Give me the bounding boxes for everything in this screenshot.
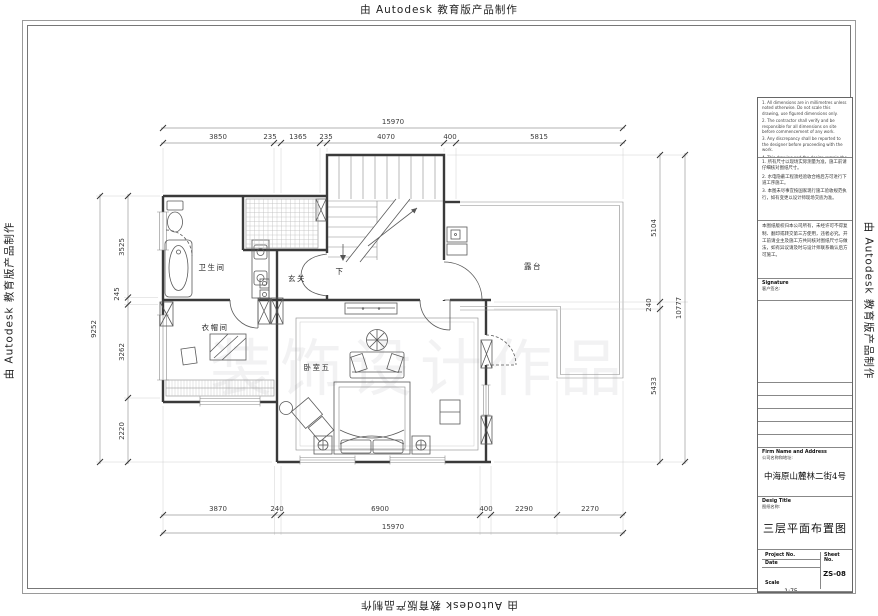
stairs: 下 (328, 156, 443, 276)
note-en-1: 1. All dimensions are in millimetres unl… (762, 100, 848, 116)
project-address: 中海原山麓林二街4号 (762, 470, 848, 482)
terrace-label: 露台 (524, 261, 542, 271)
note-cn-1: 1. 所有尺寸以现场实际测量为准，施工前请仔细核对图纸尺寸。 (762, 160, 848, 172)
hall-cabinets (447, 227, 467, 255)
dim-bot-4: 2290 (515, 505, 533, 513)
entry-cabinet (260, 279, 269, 299)
dimensions: 15970 3850 235 1365 235 4070 400 5815 38… (90, 118, 688, 536)
vanity-sinks (252, 240, 269, 298)
scale-cell: Scale 1:75 (762, 568, 820, 592)
dim-top-total: 15970 (382, 118, 404, 126)
bathroom-fixtures (165, 199, 318, 298)
dim-bot-0: 3870 (209, 505, 227, 513)
disclaimer: 本图纸版权归本公司所有，未经许可不得复制、翻印或转交第三方使用，违者必究。开工前… (758, 221, 852, 279)
floor-plan-svg: 装饰设计作品 (0, 0, 878, 616)
drawing-sheet: 由 Autodesk 教育版产品制作 由 Autodesk 教育版产品制作 由 … (0, 0, 878, 616)
dim-top-4: 4070 (377, 133, 395, 141)
scale-value: 1:75 (765, 588, 817, 592)
role-supervision: Supervision 监理: (758, 435, 852, 448)
bathroom-label: 卫生间 (199, 262, 226, 272)
dim-bot-5: 2270 (581, 505, 599, 513)
role-dealer: Dealer 经销: (758, 422, 852, 435)
plant (367, 330, 388, 351)
firm-label-cn: 公司名称和地址: (762, 455, 848, 461)
sheet-info-table: Project No. Date Scale 1:75 Sheet No. ZS… (758, 550, 852, 592)
entry-label: 玄关 (288, 273, 306, 283)
dim-bot-2: 6900 (371, 505, 389, 513)
dim-bot-3: 400 (479, 505, 492, 513)
drawing-title: 三层平面布置图 (762, 520, 848, 536)
bathtub (165, 240, 192, 297)
dim-left-3: 2220 (118, 422, 126, 440)
dim-top-5: 400 (443, 133, 456, 141)
watermark-text: 装饰设计作品 (210, 332, 630, 405)
nightstand-right (412, 436, 430, 454)
scale-label: Scale (765, 581, 779, 586)
closet-stool (181, 347, 197, 365)
project-no-label: Project No. (762, 552, 820, 560)
closet-door (230, 300, 258, 328)
drawing-title-section: Desig Title 图纸名称: 三层平面布置图 (758, 497, 852, 550)
dim-left-0: 3525 (118, 238, 126, 256)
stair-arrow-head (411, 208, 417, 214)
role-designer: Designer 设计: (758, 383, 852, 396)
note-en-2: 2. The contractor shall verify and be re… (762, 118, 848, 134)
bedroom-north-door (420, 300, 450, 330)
desig-title-label-cn: 图纸名称: (762, 504, 848, 510)
dim-right-0: 5104 (650, 219, 658, 237)
firm-section: Firm Name and Address 公司名称和地址: 中海原山麓林二街4… (758, 448, 852, 498)
bedroom-label: 卧室五 (304, 362, 331, 372)
role-drawnby: Drawnby 绘图: (758, 396, 852, 409)
dim-right-outer: 10777 (675, 297, 683, 319)
signature-label-cn: 客户签名: (762, 286, 848, 292)
stairs-down-label: 下 (336, 267, 345, 276)
stair-down-arrow (340, 255, 346, 261)
toilet (167, 201, 183, 232)
dim-bot-1: 240 (270, 505, 283, 513)
note-en-3: 3. Any discrepancy shall be reported to … (762, 136, 848, 152)
role-approve: Approve 审核: (758, 409, 852, 422)
dim-top-1: 235 (263, 133, 276, 141)
dim-left-1: 245 (113, 287, 121, 300)
dim-right-2: 5433 (650, 377, 658, 395)
notes-chinese: 1. 所有尺寸以现场实际测量为准，施工前请仔细核对图纸尺寸。 2. 水电隐蔽工程… (758, 158, 852, 222)
shower-swing (166, 230, 192, 256)
dim-left-2: 3262 (118, 343, 126, 361)
tile-grid (246, 199, 318, 248)
dim-top-3: 235 (319, 133, 332, 141)
dim-left-total: 9252 (90, 320, 98, 338)
sheet-no-label: Sheet No. (821, 552, 848, 564)
terrace-door (444, 262, 482, 300)
sheet-no-value: ZS-08 (821, 570, 848, 578)
note-cn-2: 2. 水电隐蔽工程须经验收合格后方可进行下道工序施工。 (762, 175, 848, 187)
dim-right-1: 240 (645, 298, 653, 311)
note-cn-3: 3. 本图未尽事宜按国家现行施工验收规范执行，如有变更以设计师现场交底为准。 (762, 189, 848, 201)
title-block: 1. All dimensions are in millimetres unl… (757, 97, 853, 593)
signature-box[interactable] (758, 301, 852, 383)
dim-top-6: 5815 (530, 133, 548, 141)
dresser (345, 303, 397, 314)
dim-bottom-total: 15970 (382, 523, 404, 531)
notes-english: 1. All dimensions are in millimetres unl… (758, 98, 852, 158)
signature-header: Signature 客户签名: (758, 279, 852, 301)
dim-top-0: 3850 (209, 133, 227, 141)
date-label: Date (762, 560, 820, 568)
stair-break-mask (346, 199, 410, 262)
dim-top-2: 1365 (289, 133, 307, 141)
closet-label: 衣帽间 (202, 322, 229, 332)
